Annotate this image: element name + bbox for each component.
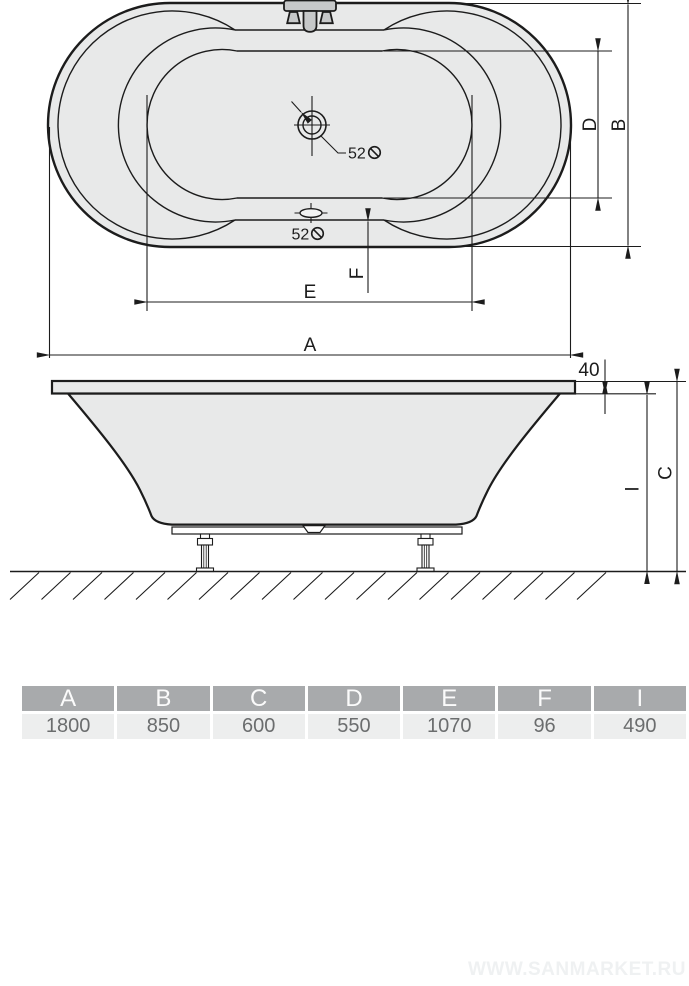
table-value-i: 490 <box>594 714 686 739</box>
page: 52 52 <box>0 0 689 986</box>
table-value-e: 1070 <box>403 714 495 739</box>
dim-label-40: 40 <box>578 360 599 381</box>
dim-label-e: E <box>304 282 317 303</box>
table-header-c: C <box>213 686 305 711</box>
foot-left <box>197 534 214 572</box>
table-value-b: 850 <box>117 714 209 739</box>
drain-diameter-label: 52 <box>348 146 366 163</box>
table-header-a: A <box>22 686 114 711</box>
tub-body-profile <box>68 394 560 525</box>
bathtub-technical-drawing: 52 52 <box>0 0 689 660</box>
table-value-a: 1800 <box>22 714 114 739</box>
dim-label-d: D <box>580 118 601 132</box>
table-header-f: F <box>498 686 590 711</box>
side-view: 40 I C <box>10 360 686 600</box>
dimension-table: A B C D E F I 1800 850 600 550 1070 96 4… <box>22 686 686 739</box>
dim-label-i: I <box>623 486 644 491</box>
table-header-d: D <box>308 686 400 711</box>
table-value-c: 600 <box>213 714 305 739</box>
dim-label-a: A <box>304 335 317 356</box>
table-header-e: E <box>403 686 495 711</box>
table-header-b: B <box>117 686 209 711</box>
watermark: WWW.SANMARKET.RU <box>468 959 686 981</box>
table-value-d: 550 <box>308 714 400 739</box>
dim-label-f: F <box>347 268 368 280</box>
dim-label-b: B <box>609 119 630 132</box>
top-view: 52 52 <box>48 1 641 359</box>
tub-rim-profile <box>52 381 575 394</box>
foot-right <box>417 534 434 572</box>
ground-hatching <box>10 573 606 600</box>
ext-lines-side <box>561 382 686 394</box>
table-value-f: 96 <box>498 714 590 739</box>
overflow-diameter-label: 52 <box>292 227 310 244</box>
table-header-i: I <box>594 686 686 711</box>
dim-label-c: C <box>656 466 677 480</box>
